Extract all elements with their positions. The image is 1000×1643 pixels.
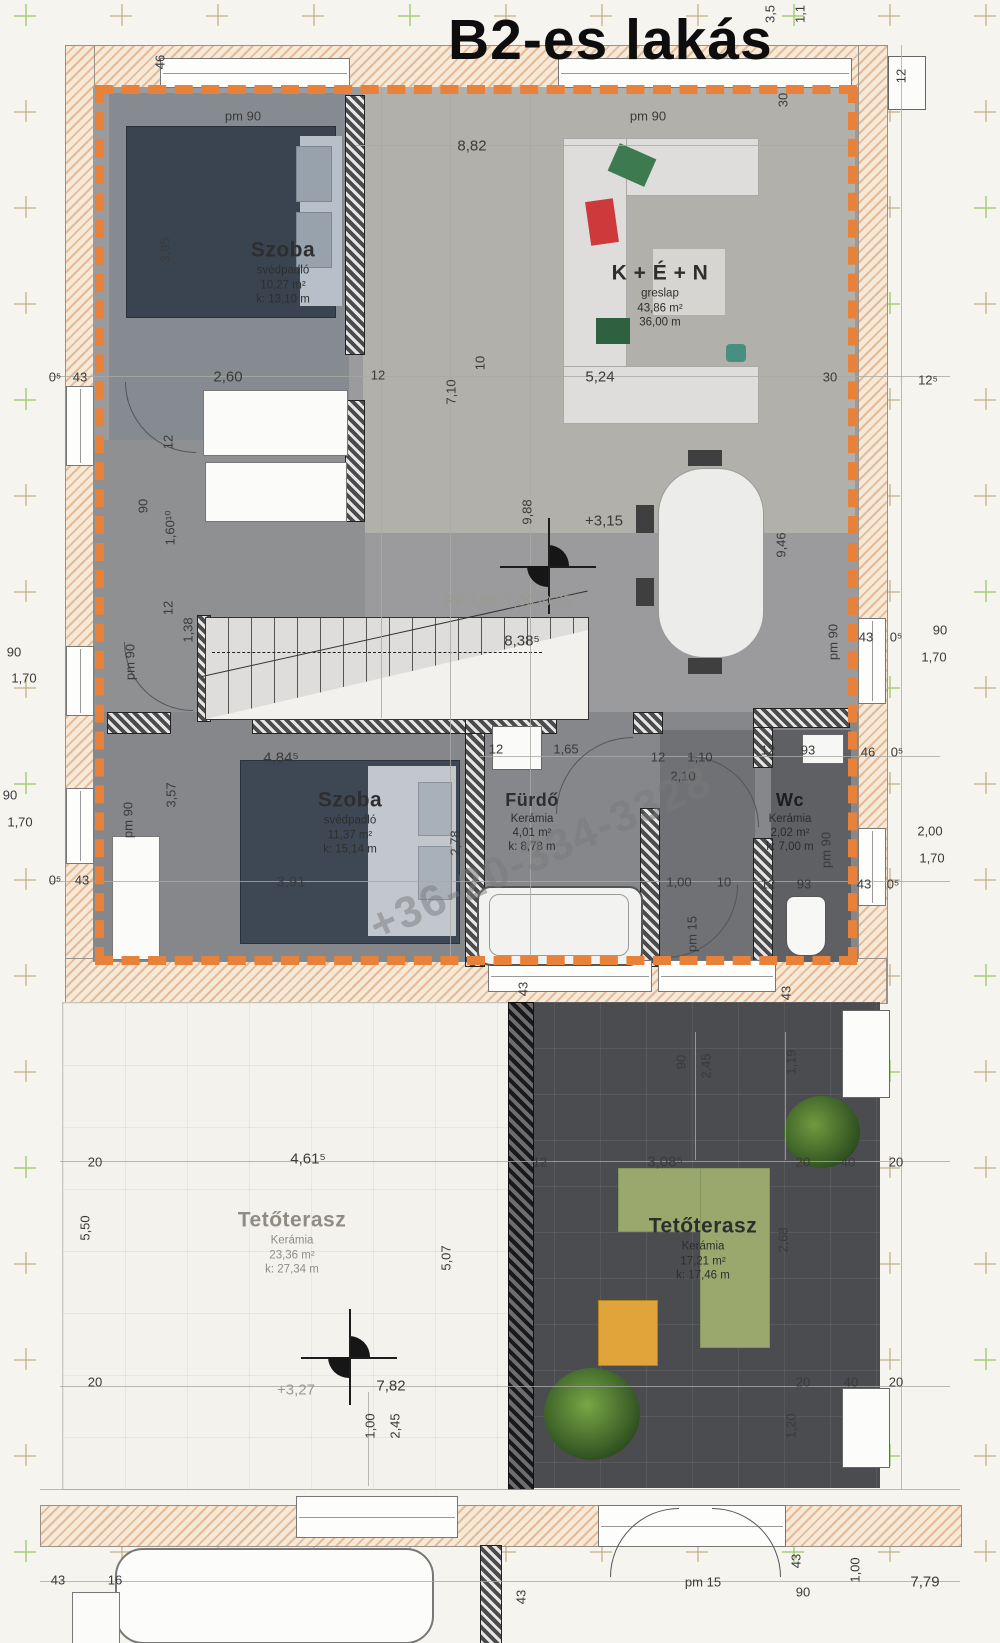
dimension-label: 90 [7,646,21,659]
dimension-label: 10 [717,876,731,889]
room-perimeter: k: 13,10 m [251,292,315,306]
dimension-label: 5,07 [440,1245,453,1270]
dimension-label: 20 [796,1376,810,1389]
dimension-label: 20 [88,1156,102,1169]
dimension-label: 12 [533,1156,547,1169]
dimension-line [40,1489,960,1490]
room-floor-type: Kerámia [238,1234,346,1248]
dimension-label: 0⁵ [49,371,62,384]
lower-bathtub [115,1548,434,1643]
dimension-label: 8,82 [457,139,486,154]
dimension-label: 2,45 [700,1053,713,1078]
dimension-line [695,1032,696,1160]
dimension-label: 43 [515,1590,528,1604]
dimension-label: 12 [651,751,665,764]
dimension-label: 12 [371,369,385,382]
dimension-label: 43 [780,986,793,1000]
room-floor-type: Kerámia [649,1240,757,1254]
room-name: Tetőterasz [649,1213,757,1239]
room-label-tetoterasz-right: Tetőterasz Kerámia 17,21 m² k: 17,46 m [649,1213,757,1282]
room-label-wc: Wc Kerámia 2,02 m² k: 7,00 m [766,789,813,855]
dimension-label: 90 [675,1055,688,1069]
terrace-divider-wall [508,1002,534,1490]
lower-wall [480,1545,502,1643]
window-left-1 [66,386,94,466]
dimension-label: 1,70 [921,651,946,664]
room-area: 10,27 m² [251,278,315,292]
dimension-label: 43 [517,982,530,996]
dimension-label: 90 [137,499,150,513]
dimension-label: 9,46 [775,532,788,557]
dimension-line [60,1386,950,1387]
dimension-label: 90 [796,1586,810,1599]
dimension-label: +3,27 [277,1383,315,1398]
dimension-label: 43 [790,1554,803,1568]
room-floor-type: svédpadló [251,264,315,278]
dimension-label: 40 [841,1156,855,1169]
dimension-label: 0⁵ [890,631,903,644]
dimension-label: 43 [73,371,87,384]
dimension-label: 12 [895,69,908,83]
room-label-szoba-2: Szoba svédpadló 11,37 m² k: 15,14 m [318,787,382,856]
dimension-label: 20 [889,1156,903,1169]
dimension-label: 2,60 [213,370,242,385]
dimension-label: 1,70 [7,816,32,829]
room-floor-type: svédpadló [318,814,382,828]
room-perimeter: 36,00 m [612,315,709,329]
dimension-label: pm 90 [820,832,833,868]
dimension-label: pm 15 [685,1576,721,1589]
dimension-label: 4,84⁵ [263,751,298,766]
dimension-label: 12 [162,601,175,615]
dimension-label: 0⁵ [887,878,900,891]
dimension-label: 1,70 [11,672,36,685]
dimension-label: 3,91 [276,875,305,890]
room-label-ken: K + É + N greslap 43,86 m² 36,00 m [612,260,709,329]
room-perimeter: k: 27,34 m [238,1262,346,1276]
dimension-line [901,45,902,1489]
room-area: 23,36 m² [238,1248,346,1262]
room-perimeter: k: 7,00 m [766,840,813,854]
window-left-3 [66,788,94,864]
dimension-label: pm 90 [630,110,666,123]
room-name: Szoba [318,787,382,813]
dimension-label: 8,38⁵ [504,634,539,649]
room-area: 17,21 m² [649,1254,757,1268]
dimension-label: PF 4,25 /1,00 /0,35 [444,594,572,609]
room-area: 2,02 m² [766,826,813,840]
room-name: Szoba [251,237,315,263]
apartment-boundary [95,85,857,965]
dimension-label: 5,24 [585,370,614,385]
dimension-label: 1,1 [794,5,807,23]
window-left-2 [66,646,94,716]
dimension-label: 16 [108,1574,122,1587]
dimension-label: 90 [3,789,17,802]
room-area: 11,37 m² [318,828,382,842]
dimension-label: 12 [761,744,775,757]
dimension-label: 4,61⁵ [290,1152,325,1167]
dimension-label: 2,00 [917,825,942,838]
page-title: B2-es lakás [448,12,773,69]
dimension-line [60,1161,950,1162]
dimension-label: 5,50 [79,1215,92,1240]
room-area: 43,86 m² [612,301,709,315]
dimension-label: 46 [861,746,875,759]
window-right-2 [858,828,886,906]
dimension-label: 20 [889,1376,903,1389]
dimension-label: 1,00 [849,1557,862,1582]
room-name: K + É + N [612,260,709,286]
dimension-label: 10 [474,356,487,370]
dimension-label: 1,60¹⁰ [164,511,177,546]
room-floor-type: greslap [612,287,709,301]
room-label-tetoterasz-left: Tetőterasz Kerámia 23,36 m² k: 27,34 m [238,1207,346,1276]
room-name: Wc [766,789,813,812]
dimension-label: 2,68 [777,1227,790,1252]
room-perimeter: k: 17,46 m [649,1268,757,1282]
room-name: Fürdő [505,789,559,812]
terrace-table-yellow [598,1300,658,1366]
lower-cabinet [72,1592,120,1643]
room-name: Tetőterasz [238,1207,346,1233]
dimension-label: 93 [797,878,811,891]
room-floor-type: Kerámia [766,812,813,826]
dimension-label: 0⁵ [49,874,62,887]
dimension-label: 93 [801,744,815,757]
dimension-label: 30 [777,93,790,107]
railing-panel-1 [842,1010,890,1098]
dimension-label: 1,00 [666,876,691,889]
dimension-label: 12 [489,743,503,756]
dimension-label: 46 [154,55,167,69]
dimension-label: pm 90 [827,624,840,660]
window-top-left [160,58,350,88]
dimension-label: 43 [857,878,871,891]
dimension-label: 43 [51,1574,65,1587]
dimension-label: pm 90 [124,644,137,680]
dimension-label: 43 [859,631,873,644]
dimension-label: pm 90 [225,110,261,123]
dimension-label: 9,88 [521,499,534,524]
dimension-label: 7,79 [910,1575,939,1590]
dimension-label: 7,82 [376,1379,405,1394]
room-perimeter: k: 15,14 m [318,842,382,856]
lower-floor-wall [40,1505,962,1547]
dimension-label: 0⁵ [891,746,904,759]
dimension-label: 12 [162,435,175,449]
dimension-label: 2,45 [389,1413,402,1438]
dimension-label: pm 90 [122,802,135,838]
dimension-label: 1,38 [182,617,195,642]
plant [544,1368,640,1460]
dimension-label: 1,70 [919,852,944,865]
dimension-label: 20 [796,1156,810,1169]
dimension-label: 7,10 [445,379,458,404]
dimension-line [40,1581,960,1582]
dimension-label: 2,78 [449,830,462,855]
dimension-label: 12 [761,878,775,891]
railing-panel-2 [842,1388,890,1468]
dimension-line [368,1392,369,1486]
lower-floor-window [296,1496,458,1538]
dimension-label: 30 [823,371,837,384]
dimension-label: 43 [75,874,89,887]
floor-plan-page: Szoba svédpadló 10,27 m² k: 13,10 m K + … [0,0,1000,1643]
dimension-label: 40 [844,1376,858,1389]
dimension-label: 3,57 [165,782,178,807]
dimension-label: 90 [933,624,947,637]
dimension-label: 3,95 [159,237,172,262]
dimension-label: 3,08⁵ [647,1155,682,1170]
dimension-label: 1,65 [553,743,578,756]
dimension-label: pm 15 [686,916,699,952]
dimension-label: 1,00 [364,1413,377,1438]
dimension-label: 20 [88,1376,102,1389]
room-label-szoba-1: Szoba svédpadló 10,27 m² k: 13,10 m [251,237,315,306]
dimension-label: 12⁵ [918,374,938,387]
dimension-label: +3,15 [585,514,623,529]
dimension-label: 1,19 [785,1049,798,1074]
dimension-label: 1,20 [785,1413,798,1438]
